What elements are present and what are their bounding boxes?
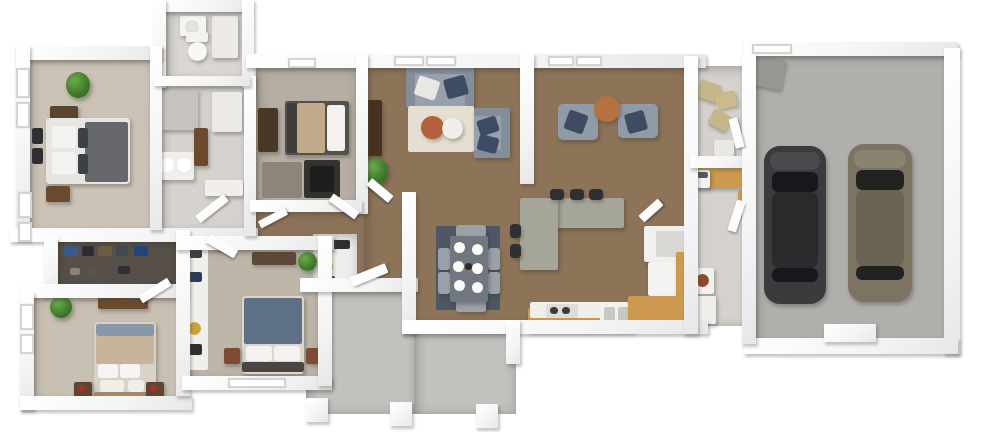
- wall-bed3-living-divider: [356, 54, 368, 214]
- patio-post-1: [306, 398, 328, 422]
- window-master-left-1: [20, 304, 34, 330]
- window-living-top-1: [394, 56, 424, 66]
- closet-item-3: [118, 266, 130, 274]
- wardrobe-bed3: [258, 108, 278, 152]
- master-nightstand-decor-1: [78, 385, 85, 392]
- coffee-table-round: [421, 116, 444, 139]
- wall-bath1-right: [242, 0, 254, 88]
- car-dark-roof: [772, 192, 818, 268]
- bed2-pillow-dark-1: [78, 128, 88, 148]
- bed4-pillow-1: [246, 346, 272, 361]
- breakfast-bar-side: [520, 198, 558, 270]
- wall-kitchen-laundry-divider: [684, 56, 698, 334]
- bar-stool-2: [570, 189, 584, 200]
- potted-plant-bed2: [66, 72, 90, 98]
- bed3-blanket: [297, 103, 325, 153]
- burner-1: [550, 307, 558, 314]
- master-pillow-1: [98, 364, 118, 378]
- bed4-headboard: [242, 362, 304, 372]
- mudroom-basket: [714, 140, 734, 156]
- potted-plant-master: [50, 296, 72, 318]
- nightstand-bed2: [46, 186, 70, 202]
- patio-post-3: [476, 404, 498, 428]
- window-bed4-bottom: [228, 378, 286, 388]
- closet-clothes-4: [116, 246, 128, 256]
- wall-bath-divider: [154, 76, 250, 86]
- dining-chair-left-2: [438, 272, 450, 294]
- dining-plate-6: [472, 282, 483, 293]
- bed2-blanket: [85, 122, 128, 182]
- cabinet-bath2: [194, 128, 208, 166]
- window-bed2-left-4: [18, 222, 32, 242]
- bed3-pillows: [327, 105, 345, 151]
- bath2-sink-2: [177, 158, 191, 172]
- window-master-left-2: [20, 334, 34, 354]
- bar-stool-5: [510, 244, 521, 258]
- master-nightstand-decor-2: [150, 385, 157, 392]
- wall-art-bed2-2: [32, 148, 43, 164]
- closet-item-2: [86, 268, 96, 275]
- dining-chair-right-2: [488, 272, 500, 294]
- car-dark-windshield: [772, 172, 818, 192]
- bath2-sink-1: [160, 158, 174, 172]
- potted-plant-bed4: [298, 252, 317, 271]
- floor-plan-screenshot: [0, 0, 1000, 432]
- bed4-blanket: [244, 298, 302, 344]
- master-pillow-3: [100, 380, 124, 392]
- dining-plate-3: [453, 261, 464, 272]
- dining-chair-left-1: [438, 248, 450, 270]
- car-olive-hood: [854, 150, 906, 168]
- window-bed3-top: [288, 58, 316, 68]
- wall-living-divider: [520, 54, 534, 184]
- loveseat-arm-top: [474, 108, 510, 116]
- dining-centerpiece: [465, 263, 472, 270]
- bar-stool-1: [550, 189, 564, 200]
- car-olive-rear-glass: [856, 266, 904, 280]
- window-bed2-left-1: [16, 68, 30, 98]
- bed3-closet-tv: [310, 166, 334, 192]
- closet-clothes-5: [134, 246, 148, 256]
- wall-garage-notch: [824, 324, 876, 342]
- master-bed-accent: [96, 324, 154, 336]
- wall-bath1-top: [160, 0, 250, 12]
- car-olive-roof: [856, 190, 904, 266]
- wall-dining-hall: [402, 192, 416, 334]
- car-dark-hood: [770, 152, 820, 170]
- sofa-arm-left: [406, 64, 415, 108]
- dining-plate-2: [472, 244, 483, 255]
- wall-patio-stub: [506, 320, 520, 364]
- window-sitting-top-2: [576, 56, 602, 66]
- window-sitting-top-1: [548, 56, 574, 66]
- wall-laundry-garage: [742, 54, 756, 344]
- wall-master-bottom: [20, 396, 192, 410]
- coffee-table-white: [442, 118, 463, 139]
- towel-shelf-bath2: [212, 92, 242, 132]
- towel-shelf-bath1: [212, 16, 238, 58]
- car-olive-windshield: [856, 170, 904, 190]
- wall-dining-kitchen-bottom: [402, 320, 708, 334]
- dining-plate-5: [454, 280, 465, 291]
- dining-plate-1: [454, 242, 465, 253]
- window-garage-top: [752, 44, 792, 54]
- floor-plan-render: [0, 0, 1000, 432]
- closet-clothes-1: [64, 246, 78, 256]
- car-dark-rear-glass: [772, 268, 818, 282]
- shower-bath2: [162, 90, 198, 130]
- dresser-bed4: [252, 252, 296, 265]
- bed3-dark-edge: [287, 103, 297, 153]
- bed4-nightstand-left: [224, 348, 240, 364]
- window-living-top-2: [426, 56, 456, 66]
- patio-post-2: [390, 402, 412, 426]
- dining-chair-right-1: [488, 248, 500, 270]
- wall-garage-right: [944, 48, 960, 354]
- window-bed2-left-3: [18, 192, 32, 218]
- closet-clothes-3: [98, 246, 112, 256]
- wall-mudroom-laundry-divider: [690, 156, 748, 168]
- bar-stool-3: [589, 189, 603, 200]
- bar-stool-4: [510, 224, 521, 238]
- toilet-bowl: [188, 42, 207, 61]
- patio-floor-right: [414, 330, 516, 414]
- wall-bed2-hall-divider: [150, 46, 162, 230]
- toilet-tank: [186, 32, 208, 42]
- closet-item-1: [70, 268, 80, 275]
- bed2-pillow-2: [52, 152, 76, 174]
- burner-2: [562, 307, 570, 314]
- bed2-pillow-1: [52, 126, 76, 148]
- window-bed2-left-2: [16, 102, 30, 128]
- wall-art-bed2-1: [32, 128, 43, 144]
- wall-master-bed4-divider: [176, 230, 190, 396]
- master-pillow-2: [120, 364, 140, 378]
- wall-hall-bed3-divider: [244, 76, 256, 236]
- closet-clothes-2: [82, 246, 94, 256]
- dining-plate-4: [472, 263, 483, 274]
- bed3-closet-shelf: [262, 162, 302, 198]
- wall-bed4-right: [318, 236, 332, 386]
- counter-bath2: [205, 180, 243, 196]
- wall-top-left: [16, 46, 162, 60]
- master-pillow-4: [128, 380, 144, 392]
- side-table-round: [594, 96, 620, 122]
- bed4-pillow-2: [274, 346, 300, 361]
- wall-bed4-top: [176, 236, 334, 250]
- bed2-pillow-dark-2: [78, 154, 88, 174]
- master-bed-blanket: [96, 336, 154, 364]
